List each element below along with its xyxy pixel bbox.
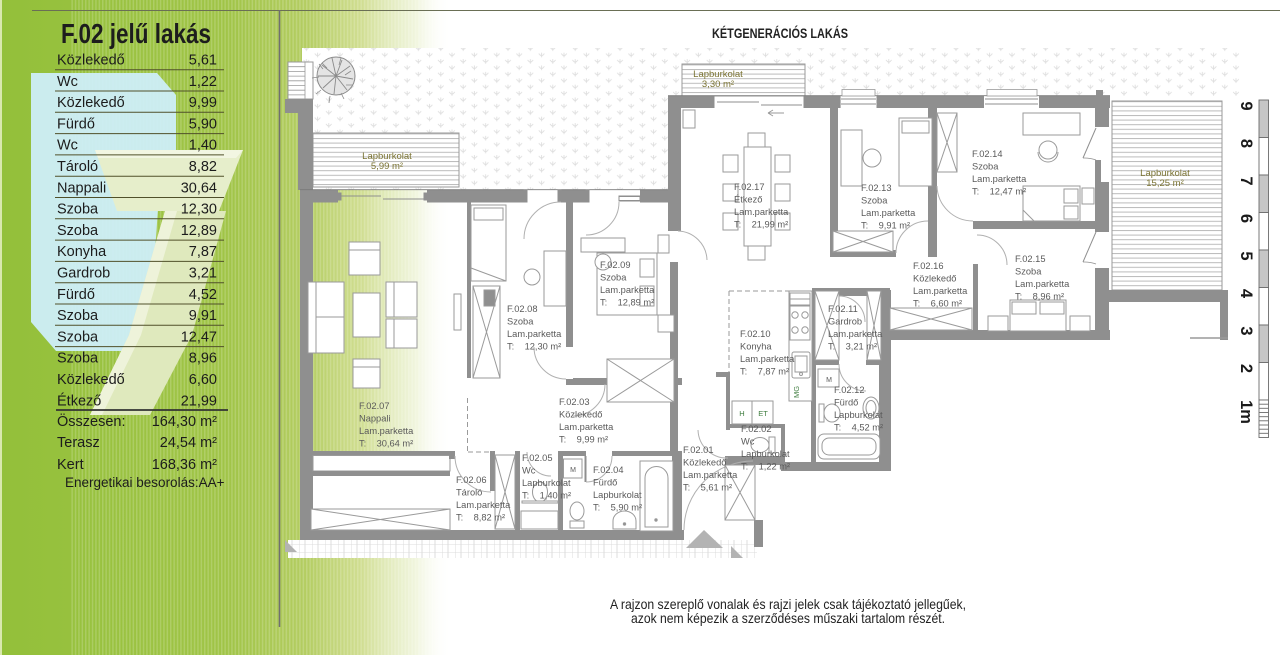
svg-text:Terasz: Terasz (57, 435, 100, 451)
svg-text:Fürdő: Fürdő (57, 116, 95, 132)
svg-text:Wc: Wc (57, 138, 78, 154)
svg-text:Lam.parketta: Lam.parketta (359, 426, 414, 436)
svg-text:H: H (739, 409, 744, 418)
svg-text:164,30 m²: 164,30 m² (152, 414, 217, 430)
svg-text:9: 9 (1237, 101, 1255, 110)
svg-text:T: 3,21 m²: T: 3,21 m² (828, 342, 877, 352)
svg-text:M: M (570, 467, 576, 474)
svg-text:3: 3 (1237, 326, 1255, 335)
svg-text:Szoba: Szoba (1015, 267, 1042, 277)
svg-text:Étkező: Étkező (734, 195, 762, 205)
svg-text:Lam.parketta: Lam.parketta (972, 174, 1027, 184)
svg-text:A rajzon szereplő vonalak és r: A rajzon szereplő vonalak és rajzi jelek… (610, 597, 966, 612)
svg-text:8,96: 8,96 (189, 351, 217, 367)
svg-text:4,52: 4,52 (189, 287, 217, 303)
svg-text:Közlekedő: Közlekedő (57, 372, 125, 388)
svg-text:MG: MG (792, 386, 801, 398)
svg-text:1m: 1m (1237, 400, 1255, 424)
svg-text:T: 5,61 m²: T: 5,61 m² (683, 483, 732, 493)
svg-text:Lam.parketta: Lam.parketta (600, 285, 655, 295)
svg-text:T: 8,82 m²: T: 8,82 m² (456, 513, 505, 523)
svg-text:T: 1,40 m²: T: 1,40 m² (522, 491, 571, 501)
svg-text:7: 7 (1237, 176, 1255, 185)
svg-text:5,61: 5,61 (189, 53, 217, 69)
svg-text:Konyha: Konyha (740, 342, 772, 352)
svg-text:Lam.parketta: Lam.parketta (828, 329, 883, 339)
svg-text:Fürdő: Fürdő (593, 478, 617, 488)
svg-text:T: 12,30 m²: T: 12,30 m² (507, 342, 561, 352)
svg-text:F.02.08: F.02.08 (507, 304, 538, 314)
svg-text:F.02.03: F.02.03 (559, 397, 590, 407)
svg-text:24,54 m²: 24,54 m² (160, 435, 217, 451)
svg-text:4: 4 (1237, 289, 1255, 299)
svg-text:Lam.parketta: Lam.parketta (861, 208, 916, 218)
svg-text:Szoba: Szoba (57, 329, 99, 345)
svg-text:Szoba: Szoba (972, 162, 999, 172)
svg-text:Szoba: Szoba (57, 308, 99, 324)
svg-text:8: 8 (1237, 139, 1255, 148)
svg-text:8,82: 8,82 (189, 159, 217, 175)
svg-text:T: 12,89 m²: T: 12,89 m² (600, 298, 654, 308)
svg-text:21,99: 21,99 (181, 393, 217, 409)
svg-text:Lam.parketta: Lam.parketta (507, 329, 562, 339)
svg-text:15,25 m²: 15,25 m² (1146, 178, 1184, 189)
svg-text:Tároló: Tároló (456, 488, 482, 498)
svg-text:Lapburkolat: Lapburkolat (834, 410, 883, 420)
svg-text:M: M (826, 377, 832, 384)
svg-text:5,99 m²: 5,99 m² (371, 161, 403, 172)
svg-text:6,60: 6,60 (189, 372, 217, 388)
svg-text:6: 6 (1237, 214, 1255, 223)
svg-text:5,90: 5,90 (189, 116, 217, 132)
svg-text:9,99: 9,99 (189, 95, 217, 111)
svg-text:Kert: Kert (57, 457, 84, 473)
svg-text:F.02.13: F.02.13 (861, 183, 892, 193)
svg-text:F.02.06: F.02.06 (456, 475, 487, 485)
svg-text:F.02.12: F.02.12 (834, 385, 865, 395)
svg-text:T: 8,96 m²: T: 8,96 m² (1015, 292, 1064, 302)
svg-text:ET: ET (758, 409, 768, 418)
svg-text:12,47: 12,47 (181, 329, 217, 345)
svg-text:Szoba: Szoba (57, 202, 99, 218)
svg-text:Lam.parketta: Lam.parketta (456, 500, 511, 510)
svg-text:F.02.10: F.02.10 (740, 329, 771, 339)
svg-text:Közlekedő: Közlekedő (683, 458, 726, 468)
svg-text:azok nem képezik a szerződéses: azok nem képezik a szerződéses műszaki t… (631, 611, 945, 626)
svg-text:T: 30,64 m²: T: 30,64 m² (359, 439, 413, 449)
svg-text:F.02.05: F.02.05 (522, 453, 553, 463)
svg-text:Lapburkolat: Lapburkolat (593, 490, 642, 500)
svg-text:Lam.parketta: Lam.parketta (734, 207, 789, 217)
svg-text:Nappali: Nappali (359, 414, 391, 424)
svg-text:Lam.parketta: Lam.parketta (740, 354, 795, 364)
svg-text:Wc: Wc (741, 437, 755, 447)
svg-text:12,89: 12,89 (181, 223, 217, 239)
svg-text:F.02.16: F.02.16 (913, 261, 944, 271)
svg-text:T: 9,91 m²: T: 9,91 m² (861, 221, 910, 231)
svg-text:168,36 m²: 168,36 m² (152, 457, 217, 473)
svg-text:Közlekedő: Közlekedő (57, 95, 125, 111)
svg-text:Fürdő: Fürdő (57, 287, 95, 303)
svg-text:Lam.parketta: Lam.parketta (913, 286, 968, 296)
svg-text:Lam.parketta: Lam.parketta (683, 470, 738, 480)
svg-text:F.02.02: F.02.02 (741, 424, 772, 434)
svg-text:F.02 jelű lakás: F.02 jelű lakás (61, 18, 211, 49)
svg-text:Lapburkolat: Lapburkolat (522, 478, 571, 488)
svg-text:F.02.01: F.02.01 (683, 445, 714, 455)
svg-text:3,30 m²: 3,30 m² (702, 79, 734, 90)
svg-text:F.02.15: F.02.15 (1015, 254, 1046, 264)
svg-text:Energetikai besorolás:AA+: Energetikai besorolás:AA+ (65, 475, 225, 490)
svg-text:T: 7,87 m²: T: 7,87 m² (740, 367, 789, 377)
svg-text:F.02.04: F.02.04 (593, 465, 624, 475)
svg-text:1,40: 1,40 (189, 138, 217, 154)
svg-text:Közlekedő: Közlekedő (559, 410, 602, 420)
svg-text:3,21: 3,21 (189, 266, 217, 282)
svg-text:7,87: 7,87 (189, 244, 217, 260)
svg-text:Szoba: Szoba (57, 351, 99, 367)
svg-text:Szoba: Szoba (57, 223, 99, 239)
svg-text:T: 5,90 m²: T: 5,90 m² (593, 503, 642, 513)
svg-text:Lapburkolat: Lapburkolat (741, 449, 790, 459)
svg-text:Összesen:: Összesen: (57, 412, 126, 430)
svg-text:T: 21,99 m²: T: 21,99 m² (734, 220, 788, 230)
svg-text:Étkező: Étkező (57, 392, 101, 409)
svg-text:Közlekedő: Közlekedő (913, 274, 956, 284)
svg-text:12,30: 12,30 (181, 202, 217, 218)
svg-text:Szoba: Szoba (600, 273, 627, 283)
svg-text:Szoba: Szoba (861, 196, 888, 206)
svg-text:Lam.parketta: Lam.parketta (559, 422, 614, 432)
svg-text:F.02.14: F.02.14 (972, 149, 1003, 159)
svg-text:Nappali: Nappali (57, 180, 106, 196)
svg-text:Konyha: Konyha (57, 244, 107, 260)
svg-text:2: 2 (1237, 364, 1255, 373)
svg-text:T: 1,22 m²: T: 1,22 m² (741, 462, 790, 472)
svg-text:KÉTGENERÁCIÓS LAKÁS: KÉTGENERÁCIÓS LAKÁS (712, 26, 848, 41)
svg-text:F.02.09: F.02.09 (600, 260, 631, 270)
svg-text:Közlekedő: Közlekedő (57, 53, 125, 69)
svg-text:T: 12,47 m²: T: 12,47 m² (972, 187, 1026, 197)
svg-text:1,22: 1,22 (189, 74, 217, 90)
svg-text:T: 6,60 m²: T: 6,60 m² (913, 299, 962, 309)
svg-text:Gardrob: Gardrob (828, 317, 862, 327)
svg-text:Wc: Wc (522, 466, 536, 476)
svg-text:Tároló: Tároló (57, 159, 98, 175)
svg-text:5: 5 (1237, 251, 1255, 260)
svg-text:Wc: Wc (57, 74, 78, 90)
svg-text:F.02.11: F.02.11 (828, 304, 858, 314)
svg-text:T: 4,52 m²: T: 4,52 m² (834, 423, 883, 433)
svg-text:Gardrob: Gardrob (57, 266, 110, 282)
svg-text:Szoba: Szoba (507, 317, 534, 327)
svg-text:Lam.parketta: Lam.parketta (1015, 279, 1070, 289)
svg-text:F.02.17: F.02.17 (734, 182, 765, 192)
svg-text:Fürdő: Fürdő (834, 398, 858, 408)
svg-text:T: 9,99 m²: T: 9,99 m² (559, 435, 608, 445)
svg-text:F.02.07: F.02.07 (359, 401, 390, 411)
svg-text:30,64: 30,64 (181, 180, 217, 196)
svg-text:9,91: 9,91 (189, 308, 217, 324)
